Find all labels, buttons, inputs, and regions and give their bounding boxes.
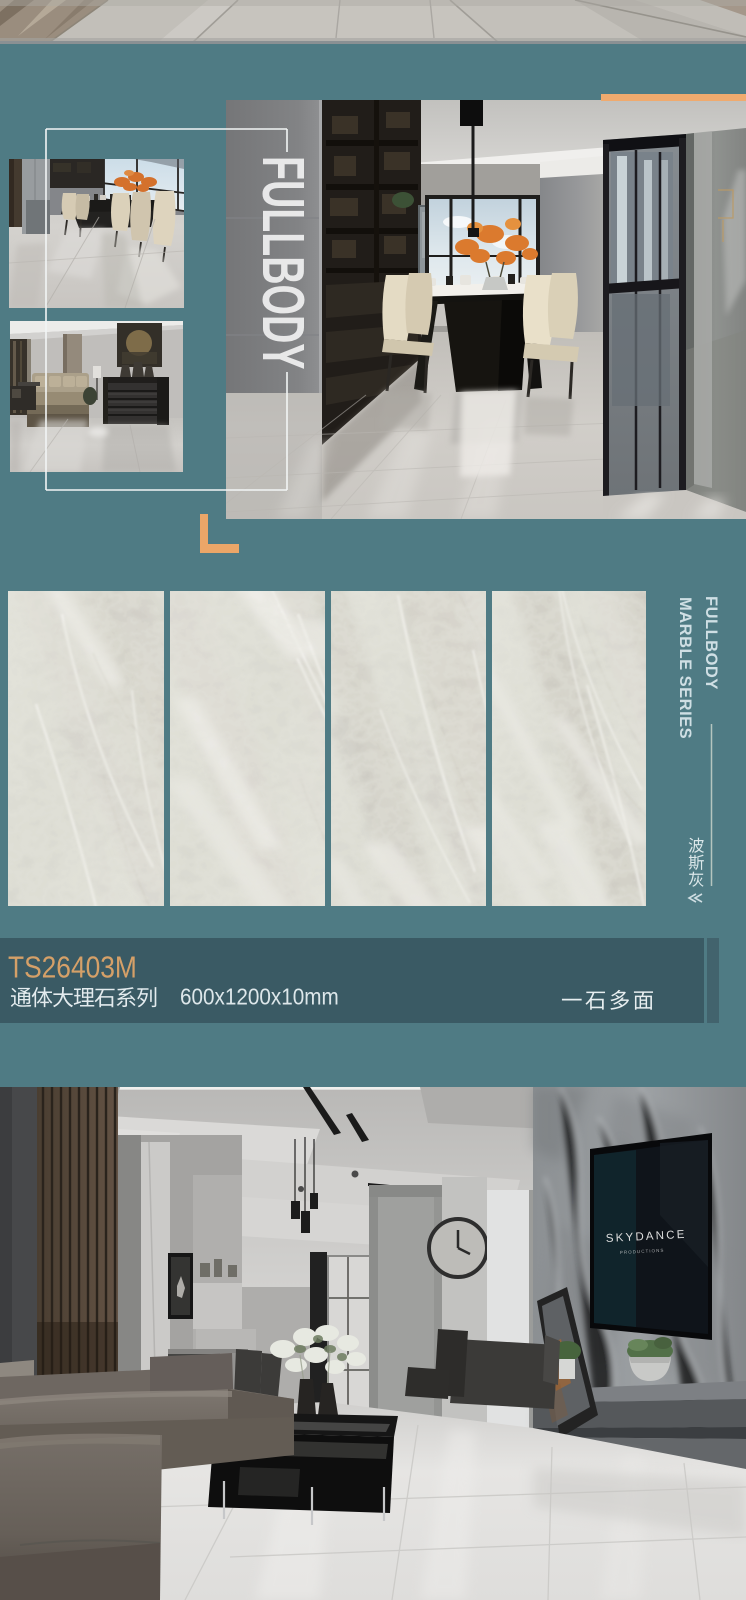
svg-text:MARBLE SERIES: MARBLE SERIES xyxy=(676,597,694,739)
svg-text:FULLBODY: FULLBODY xyxy=(702,596,720,690)
svg-text:FULLBODY: FULLBODY xyxy=(250,156,316,370)
